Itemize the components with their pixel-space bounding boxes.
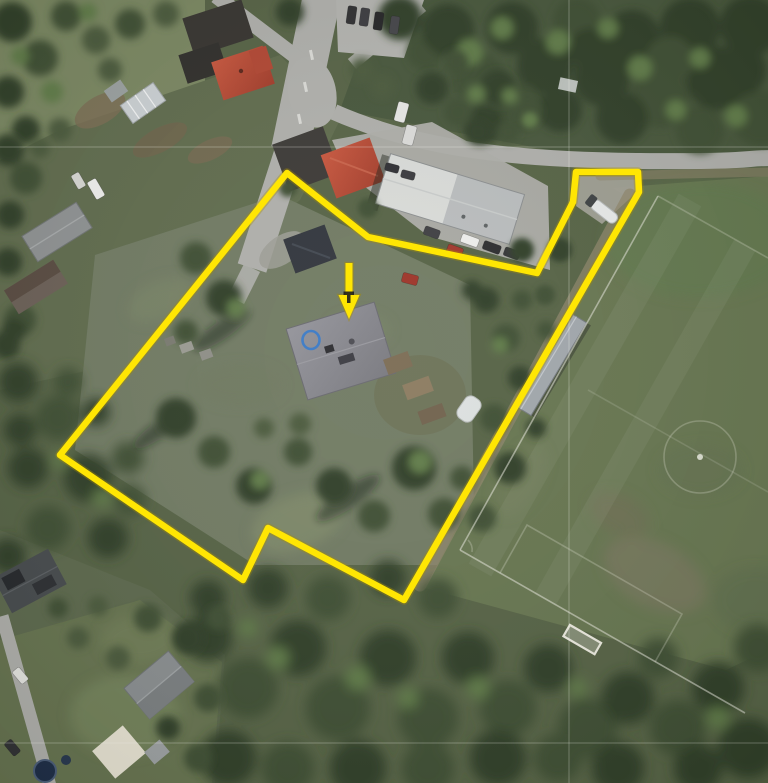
- aerial-photo: [0, 0, 768, 783]
- aerial-map: [0, 0, 768, 783]
